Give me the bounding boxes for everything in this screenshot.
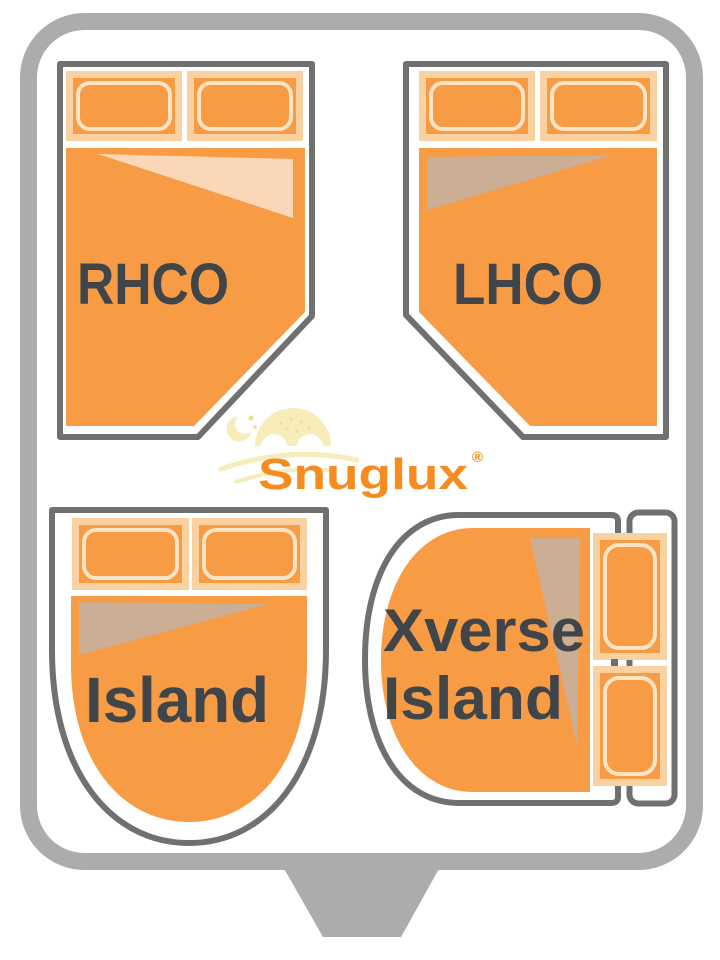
pillow [593, 533, 667, 660]
outline-dash [611, 659, 618, 666]
bed-xverse-island: Xverse Island [365, 513, 675, 804]
bed-island: Island [52, 510, 326, 843]
pillow [72, 518, 189, 590]
xverse-label-line2: Island [383, 665, 563, 732]
brand-trademark: ® [472, 449, 483, 466]
rhco-label: RHCO [77, 252, 229, 317]
pillow [192, 518, 307, 590]
pillow [187, 71, 303, 141]
xverse-label-line1: Xverse [383, 597, 585, 664]
moon-icon [227, 414, 258, 442]
pillow [540, 71, 657, 141]
bed-lhco: LHCO [406, 64, 666, 437]
brand-logo: Snuglux ® [221, 408, 483, 499]
pillow [419, 71, 535, 141]
diagram-svg: Snuglux ® RHCO [0, 0, 720, 960]
pillow [66, 71, 182, 141]
brand-name: Snuglux [258, 450, 469, 499]
island-label: Island [85, 664, 269, 736]
bed-rhco: RHCO [60, 64, 312, 437]
lhco-label: LHCO [453, 252, 603, 317]
pillow [593, 666, 667, 786]
bed-options-diagram: Snuglux ® RHCO [0, 0, 720, 960]
